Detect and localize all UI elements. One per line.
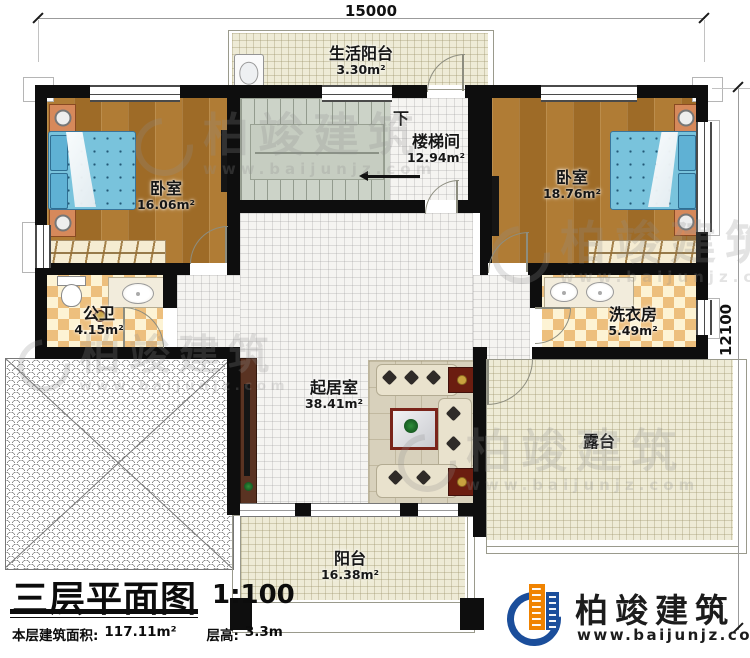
floor-area-value: 117.11m² (104, 624, 176, 644)
sink-icon (586, 282, 614, 302)
logo-building-blue-icon (546, 592, 559, 630)
wall (696, 232, 708, 300)
lamp-icon (54, 110, 71, 127)
door-leaf (462, 54, 464, 91)
room-label-bedroom-right: 卧室 18.76m² (543, 169, 601, 201)
spacer (182, 624, 200, 644)
pillow-icon (678, 173, 696, 209)
wall (35, 85, 90, 98)
nightstand-icon (674, 104, 698, 132)
washing-machine-icon (234, 54, 264, 89)
company-logo: 柏竣建筑 www.baijunjz.com (505, 582, 745, 654)
door-leaf (456, 180, 458, 213)
room-label-bedroom-left: 卧室 16.06m² (137, 180, 195, 212)
lamp-icon (678, 110, 695, 127)
hall-floor (177, 275, 240, 347)
wall (180, 85, 322, 98)
stair-direction-label: 下 (393, 110, 409, 128)
lamp-icon (54, 215, 71, 232)
door-leaf (225, 226, 227, 263)
floor-height-value: 3.3m (245, 624, 283, 644)
room-label-balcony: 阳台 16.38m² (321, 550, 379, 582)
dimension-line-right (738, 88, 739, 630)
plant-icon (404, 419, 418, 433)
floor-height-label: 层高: (206, 624, 238, 644)
floor-stats: 本层建筑面积: 117.11m² 层高: 3.3m (12, 624, 283, 644)
logo-building-orange-icon (529, 584, 545, 630)
wall (480, 85, 492, 263)
window (696, 122, 712, 232)
window (322, 85, 392, 102)
wall (35, 263, 190, 275)
window (90, 85, 180, 102)
extension-line (704, 20, 705, 62)
window (696, 300, 712, 335)
wall (35, 98, 47, 225)
wall (227, 85, 240, 275)
scale-label: 1:100 (212, 580, 295, 610)
floor-area-label: 本层建筑面积: (12, 624, 98, 644)
wall (480, 263, 488, 275)
sink-icon (550, 282, 578, 302)
floor-plan-sheet: 生活阳台 3.30m² 下 楼梯间 12.94m² 卧室 16.06m² 卧室 … (0, 0, 750, 658)
column (295, 503, 311, 516)
column (458, 503, 486, 516)
wall (696, 98, 708, 122)
door-leaf (526, 232, 528, 272)
room-label-life-balcony: 生活阳台 3.30m² (329, 45, 393, 77)
wall (532, 347, 708, 359)
room-label-stairwell: 楼梯间 12.94m² (407, 133, 465, 165)
side-table-icon (448, 468, 475, 496)
stair-arrow-head (359, 171, 368, 181)
page-title: 三层平面图 (12, 570, 197, 622)
pillow-icon (678, 135, 696, 171)
company-website: www.baijunjz.com (577, 626, 750, 644)
room-label-laundry: 洗衣房 5.49m² (608, 306, 657, 338)
plant-icon (244, 482, 253, 491)
sink-icon (122, 283, 154, 304)
nightstand-icon (674, 208, 698, 236)
room-label-bathroom: 公卫 4.15m² (74, 305, 123, 337)
tv-icon (492, 176, 499, 236)
extension-line (712, 88, 750, 89)
toilet-bowl-icon (61, 284, 82, 307)
column (400, 503, 418, 516)
wall (227, 347, 240, 515)
room-label-living: 起居室 38.41m² (305, 379, 363, 411)
wall (35, 268, 47, 359)
wall (637, 85, 708, 98)
dimension-label-top: 15000 (345, 2, 397, 20)
window (541, 85, 637, 102)
nightstand-icon (49, 104, 76, 132)
dimension-label-right: 12100 (717, 304, 735, 356)
window (35, 225, 51, 268)
wall (530, 275, 542, 308)
nightstand-icon (49, 209, 76, 237)
sliding-window (240, 503, 473, 517)
stair-direction-arrow (368, 175, 420, 178)
wall (528, 263, 697, 275)
wall (473, 347, 487, 359)
extension-line (38, 20, 39, 62)
wall (468, 85, 480, 213)
roof-hip-lines (5, 358, 232, 568)
pillow-icon (50, 173, 68, 209)
column (460, 598, 484, 630)
company-name: 柏竣建筑 (575, 584, 735, 632)
door-leaf (535, 307, 570, 309)
wall (240, 200, 425, 213)
lamp-icon (678, 214, 695, 231)
pillow-icon (50, 135, 68, 171)
title-underline (10, 609, 198, 614)
title-underline-thin (10, 617, 198, 618)
terrace-railing (486, 359, 739, 547)
door-leaf (487, 359, 489, 404)
wall (163, 275, 177, 308)
side-table-icon (448, 367, 475, 393)
room-label-terrace: 露台 (583, 433, 615, 451)
tv-icon (244, 384, 250, 476)
sofa-icon (376, 464, 458, 498)
wall (35, 347, 240, 359)
wall (392, 85, 427, 98)
